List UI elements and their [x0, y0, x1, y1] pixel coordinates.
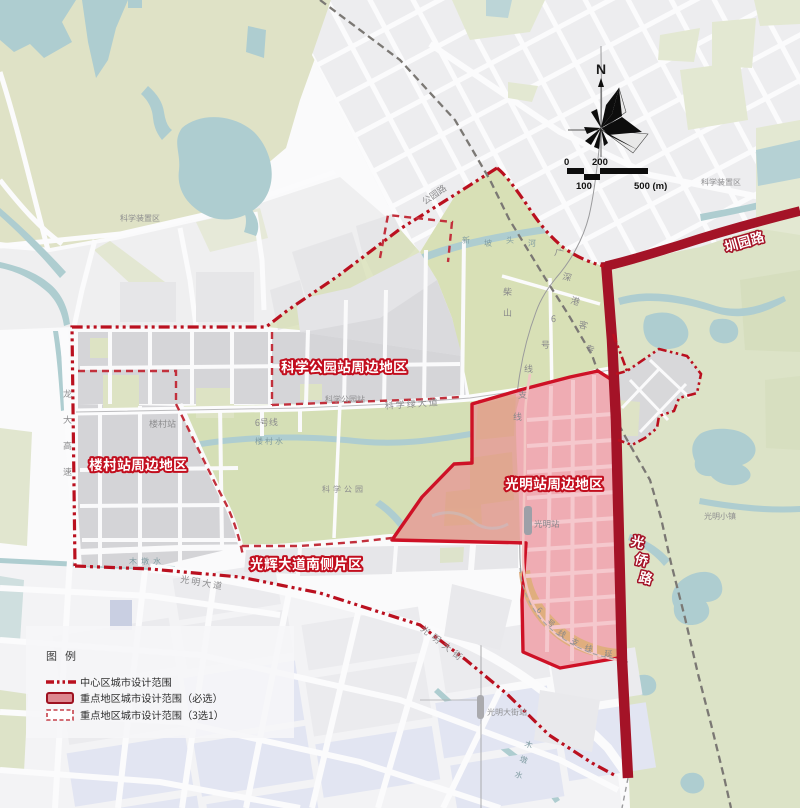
svg-text:100: 100 [576, 181, 592, 192]
svg-text:N: N [596, 61, 606, 77]
svg-text:0: 0 [564, 157, 569, 168]
svg-text:500 (m): 500 (m) [634, 181, 667, 192]
svg-text:200: 200 [592, 157, 608, 168]
